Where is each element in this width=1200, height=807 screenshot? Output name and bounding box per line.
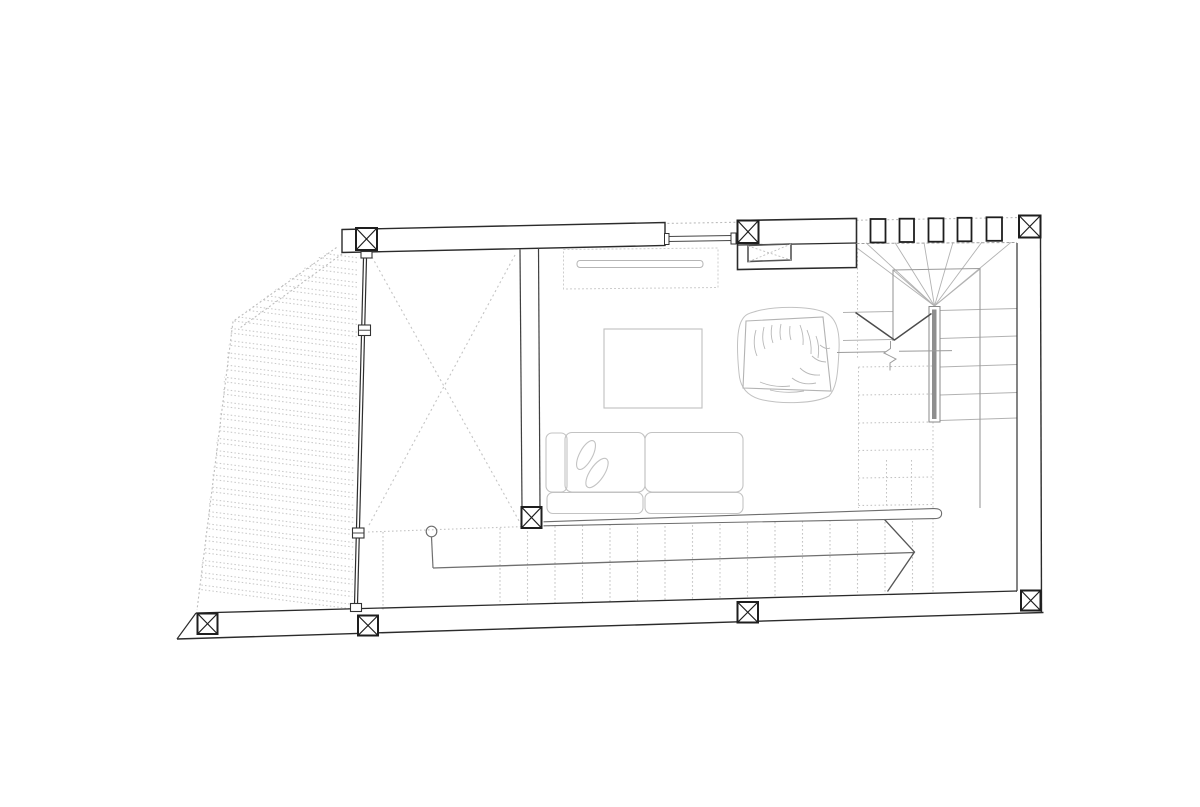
bottom-staircase [368,512,940,611]
bottom-wall-inner [196,591,1017,613]
sofa-cushion-right [645,433,743,493]
walls [177,219,1044,640]
void-cross [368,255,523,528]
right-wall-outer [1041,238,1042,613]
pouf-sketch [737,307,839,402]
pouf-scribbles [754,324,830,392]
post-connector-low [353,528,365,538]
post-connector-top [361,252,372,259]
plant-leaf-1 [573,438,600,472]
sofa-seat-right [645,493,743,514]
top-left-wall [342,223,665,253]
coffee-table [604,329,702,408]
sofa-seat-left [547,493,643,514]
tv-console [577,261,703,268]
interior-wall [520,248,540,508]
sofa [546,433,743,514]
glass-ledge [544,509,942,526]
post-connector-bottom [351,604,362,612]
bottom-wall-left-cap [177,613,196,639]
window-mullions [871,217,1003,242]
post-connector-mid [359,325,371,336]
kitchen-appliance [748,244,791,262]
bottom-wall-outer [177,613,1044,640]
stair-handrail-inner [932,310,937,420]
terrace-hatch [183,235,359,609]
columns-layer [198,216,1041,636]
rug-outline [564,248,719,289]
boundary-diagonal-a [233,248,337,322]
fence-post-line [351,252,373,612]
top-window [665,233,737,245]
living-room-furniture [546,248,839,514]
floor-plan-canvas [0,0,1200,807]
floor-plan-drawing [0,0,1200,807]
plant-leaf-2 [582,455,613,491]
sofa-armrest [546,433,567,492]
winder-static [544,269,981,526]
winder-staircase [843,242,1017,594]
